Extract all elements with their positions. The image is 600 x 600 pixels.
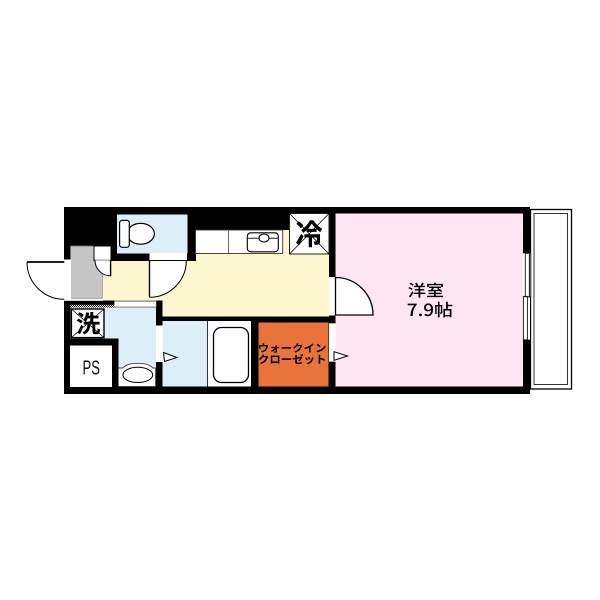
svg-text:PS: PS bbox=[83, 357, 101, 380]
